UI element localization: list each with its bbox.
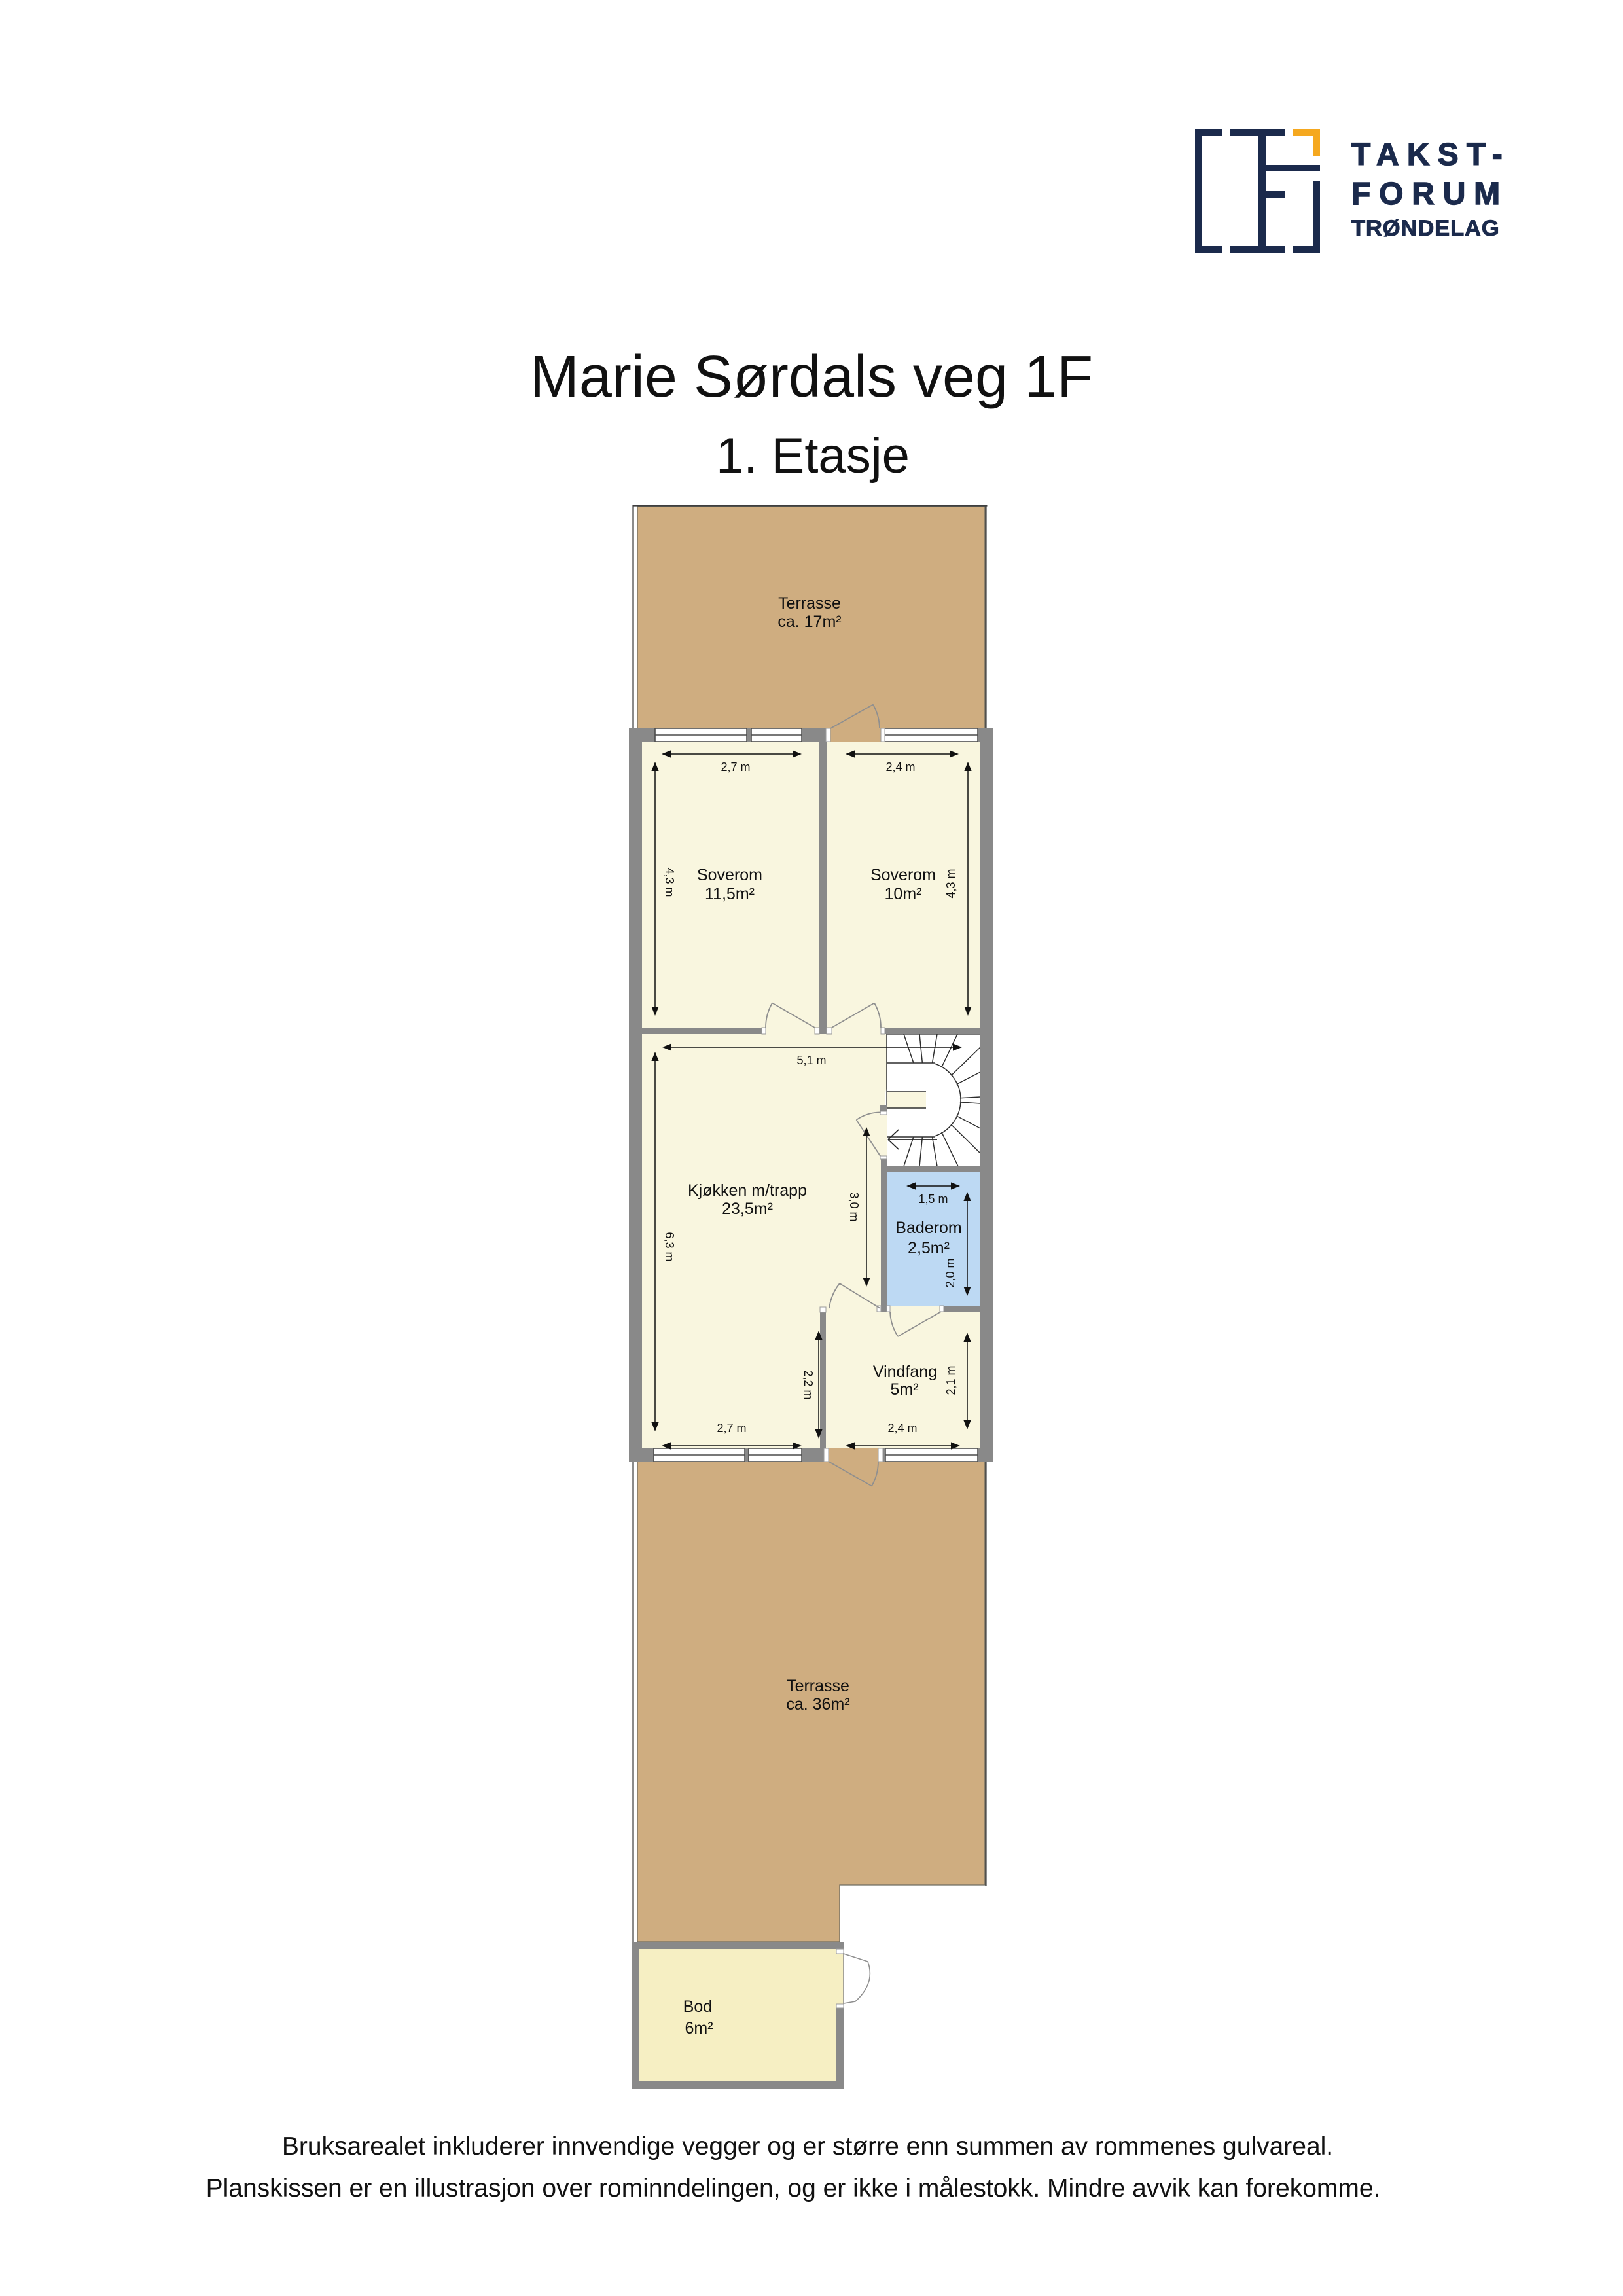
svg-text:4,3 m: 4,3 m: [944, 869, 957, 898]
svg-text:2,4 m: 2,4 m: [885, 761, 915, 774]
svg-text:TAKST-: TAKST-: [1351, 137, 1510, 172]
svg-text:4,3 m: 4,3 m: [663, 867, 676, 897]
svg-text:5m²: 5m²: [890, 1380, 918, 1399]
svg-text:2,1 m: 2,1 m: [944, 1365, 957, 1395]
svg-text:TRØNDELAG: TRØNDELAG: [1351, 216, 1500, 241]
svg-text:6,3 m: 6,3 m: [663, 1232, 676, 1261]
svg-text:Soverom: Soverom: [697, 866, 762, 884]
svg-text:11,5m²: 11,5m²: [705, 885, 755, 903]
svg-text:Bruksarealet inkluderer innven: Bruksarealet inkluderer innvendige vegge…: [282, 2132, 1333, 2161]
svg-text:Baderom: Baderom: [895, 1219, 961, 1237]
svg-text:10m²: 10m²: [885, 885, 922, 903]
svg-text:2,5m²: 2,5m²: [908, 1239, 950, 1257]
svg-text:Marie Sørdals veg 1F: Marie Sørdals veg 1F: [530, 344, 1093, 410]
svg-text:2,7 m: 2,7 m: [717, 1422, 746, 1435]
svg-text:ca. 36m²: ca. 36m²: [786, 1695, 849, 1713]
svg-text:Kjøkken m/trapp: Kjøkken m/trapp: [688, 1181, 807, 1200]
svg-text:Planskissen er en illustrasjon: Planskissen er en illustrasjon over romi…: [206, 2174, 1381, 2202]
svg-text:1,5 m: 1,5 m: [918, 1193, 948, 1206]
svg-text:2,4 m: 2,4 m: [887, 1422, 917, 1435]
svg-text:3,0 m: 3,0 m: [847, 1192, 861, 1221]
svg-text:6m²: 6m²: [685, 2019, 713, 2037]
svg-text:2,0 m: 2,0 m: [944, 1258, 957, 1287]
svg-text:Terrasse: Terrasse: [778, 594, 841, 613]
svg-text:Soverom: Soverom: [870, 866, 936, 884]
svg-text:FORUM: FORUM: [1351, 177, 1508, 211]
svg-text:2,2 m: 2,2 m: [802, 1370, 815, 1399]
svg-text:2,7 m: 2,7 m: [721, 761, 750, 774]
svg-text:Vindfang: Vindfang: [873, 1363, 937, 1381]
svg-text:Terrasse: Terrasse: [787, 1677, 849, 1695]
svg-text:5,1 m: 5,1 m: [796, 1054, 826, 1067]
svg-text:Bod: Bod: [683, 1998, 712, 2016]
svg-text:1. Etasje: 1. Etasje: [716, 428, 910, 484]
svg-text:23,5m²: 23,5m²: [722, 1200, 773, 1218]
svg-text:ca. 17m²: ca. 17m²: [777, 613, 841, 631]
